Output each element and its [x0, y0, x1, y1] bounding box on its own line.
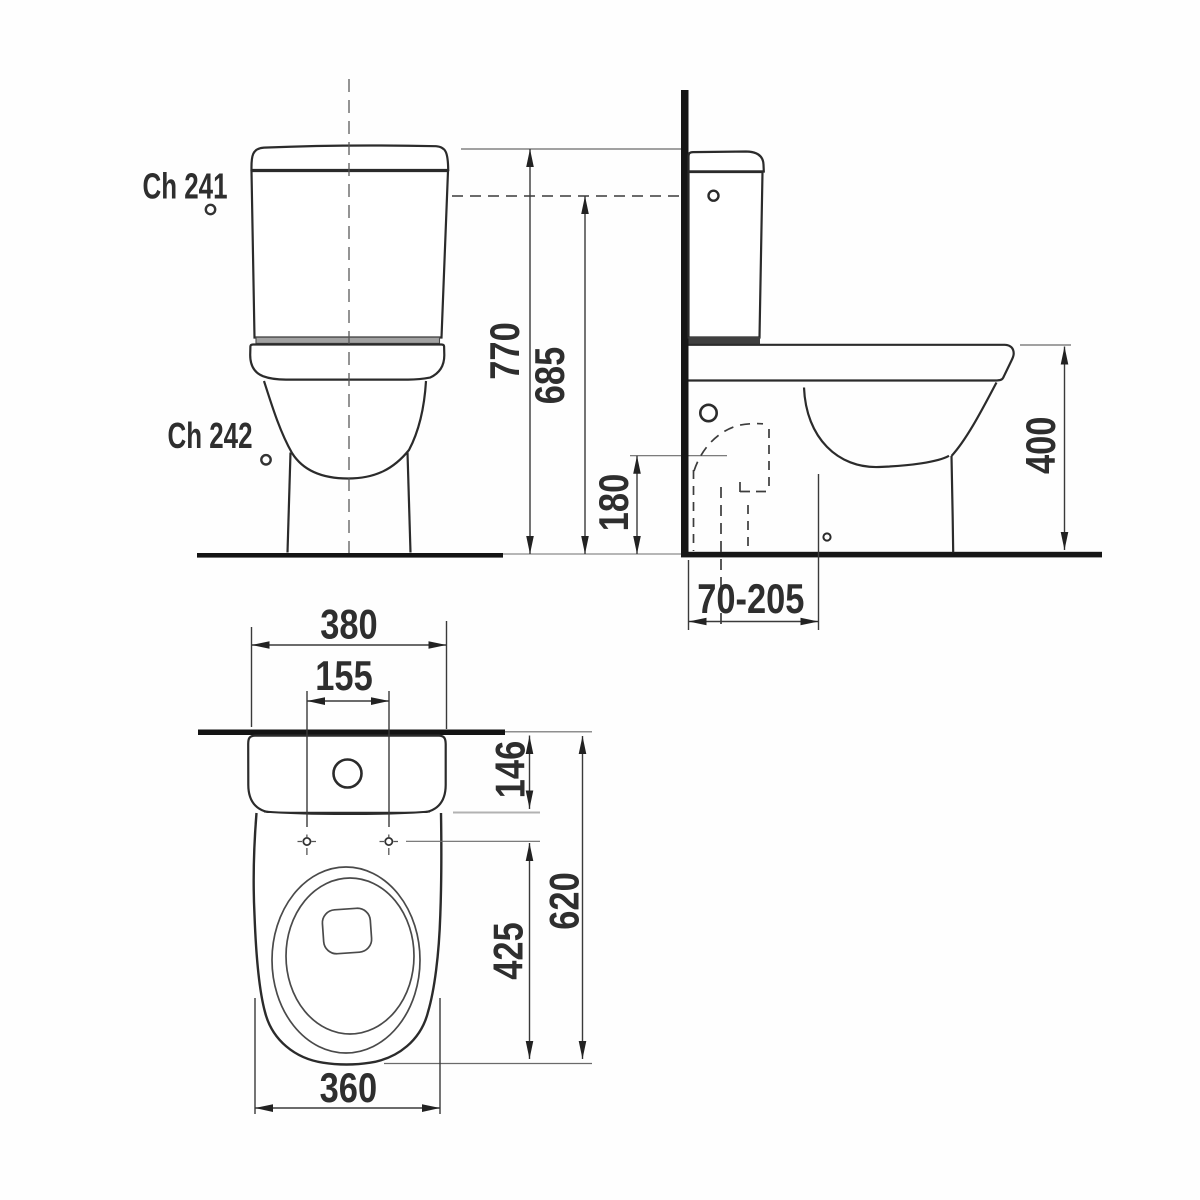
svg-text:155: 155: [315, 653, 372, 700]
svg-text:620: 620: [541, 872, 588, 929]
svg-text:685: 685: [527, 347, 574, 404]
svg-text:360: 360: [320, 1065, 377, 1112]
svg-text:Ch 241: Ch 241: [143, 166, 228, 206]
svg-text:Ch 242: Ch 242: [168, 416, 253, 456]
svg-text:146: 146: [487, 741, 534, 798]
svg-text:400: 400: [1018, 417, 1065, 474]
svg-text:70-205: 70-205: [697, 576, 804, 623]
svg-text:770: 770: [482, 322, 529, 379]
svg-text:425: 425: [485, 922, 532, 979]
svg-text:380: 380: [320, 601, 377, 648]
svg-text:180: 180: [591, 474, 638, 531]
